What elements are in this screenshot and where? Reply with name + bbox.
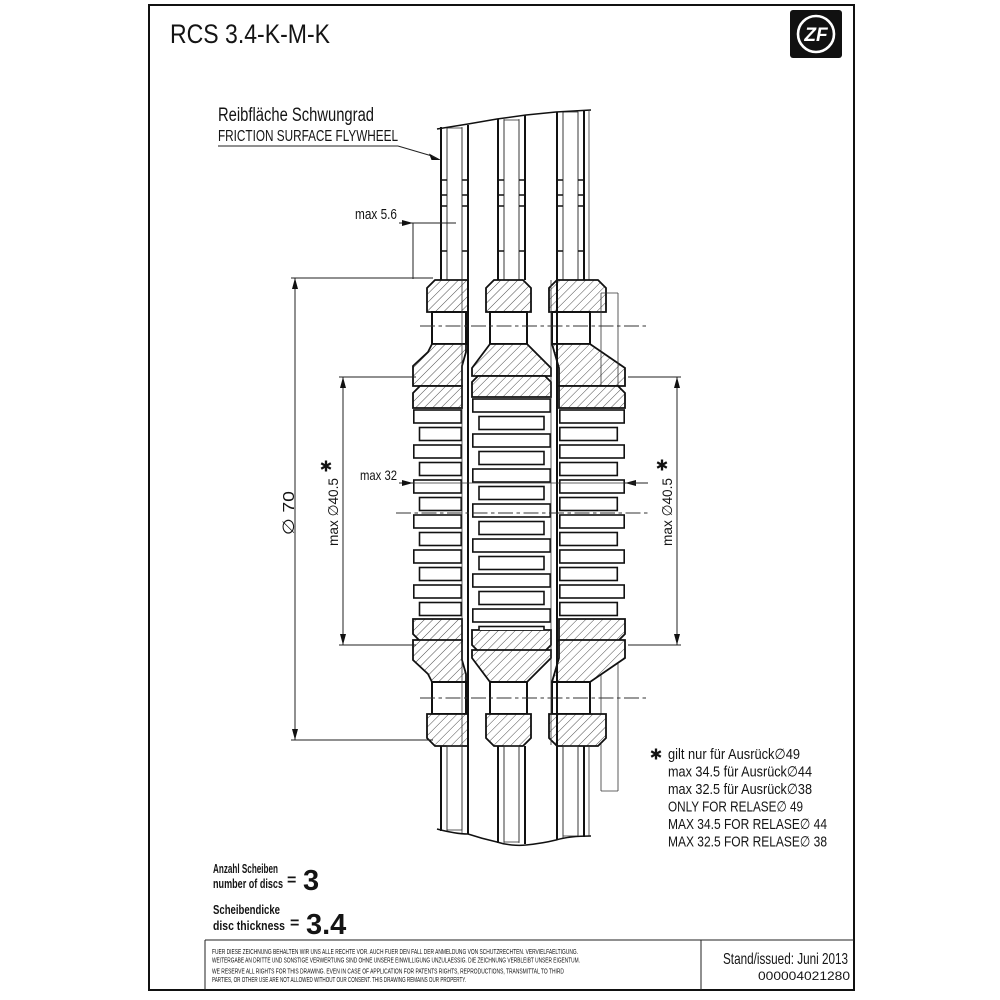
asterisk-icon [321,461,331,472]
discs-equals: = [287,872,296,889]
footnote-line-5: MAX 34.5 FOR RELASE∅ 44 [668,817,827,833]
footnote-line-2: max 34.5 für Ausrück∅44 [668,765,812,781]
asterisk-icon [657,460,667,471]
zf-logo-text: ZF [803,25,829,46]
dim-max-dia-40-5-right: max ∅40.5 [628,377,681,645]
upper-plate-columns [437,110,591,280]
footnote-line-1: gilt nur für Ausrück∅49 [668,747,800,763]
discs-label-en: number of discs [213,876,283,891]
footnote-line-4: ONLY FOR RELASE∅ 49 [668,800,803,816]
thickness-label-en: disc thickness [213,918,285,933]
friction-leader-arrow [398,146,441,160]
stand-issued: Stand/issued: Juni 2013 [723,951,848,968]
dim-max-5-6: max 5.6 [355,207,397,223]
disc-stack-left [413,408,462,619]
dim-max-dia-40-5-left-text: max ∅40.5 [325,478,341,546]
thickness-value: 3.4 [306,909,346,941]
legal-block: FUER DIESE ZEICHNUNG BEHALTEN WIR UNS AL… [212,947,580,984]
zf-logo: ZF [790,10,842,58]
disc-stack-right [559,408,625,619]
issue-block: Stand/issued: Juni 2013 000004021280 [723,951,850,983]
drawing-title: RCS 3.4-K-M-K [170,19,330,49]
clutch-section-view [396,110,650,845]
lower-hub-blocks [427,714,606,746]
legal-de-line-2: WEITERGABE AN DRITTE UND SONSTIGE VERWER… [212,956,580,965]
thickness-label-de: Scheibendicke [213,902,280,917]
spec-block: Anzahl Scheiben number of discs = 3 Sche… [213,861,346,941]
dim-dia-70-text: ∅ 70 [281,491,298,535]
dim-max-32-text: max 32 [360,467,397,483]
friction-label-en: FRICTION SURFACE FLYWHEEL [218,128,398,145]
discs-value: 3 [303,865,319,897]
disc-stack-middle [472,397,551,630]
upper-hub-blocks [427,280,606,312]
disc-stacks [413,397,625,630]
footnote-line-3: max 32.5 für Ausrück∅38 [668,782,812,798]
footnote-block: gilt nur für Ausrück∅49 max 34.5 für Aus… [651,747,827,851]
dim-max-5-6-lines [399,220,456,279]
spline-notches-top [441,180,584,251]
technical-drawing-sheet: RCS 3.4-K-M-K ZF [0,0,1000,1000]
footnote-line-6: MAX 32.5 FOR RELASE∅ 38 [668,835,827,851]
lower-rivets [420,682,648,714]
legal-en-line-2: PARTIES, OR OTHER USE ARE NOT ALLOWED WI… [212,975,466,984]
dim-max-dia-40-5-right-text: max ∅40.5 [659,478,675,546]
dim-max-dia-40-5-left: max ∅40.5 [321,377,416,645]
thickness-equals: = [290,915,299,932]
lower-plate-columns [437,746,591,845]
asterisk-icon [651,749,661,760]
upper-rivets [420,312,648,344]
dim-dia-70: ∅ 70 [281,278,433,740]
doc-number: 000004021280 [758,971,850,983]
discs-label-de: Anzahl Scheiben [213,861,278,876]
friction-label-de: Reibfläche Schwungrad [218,105,374,126]
